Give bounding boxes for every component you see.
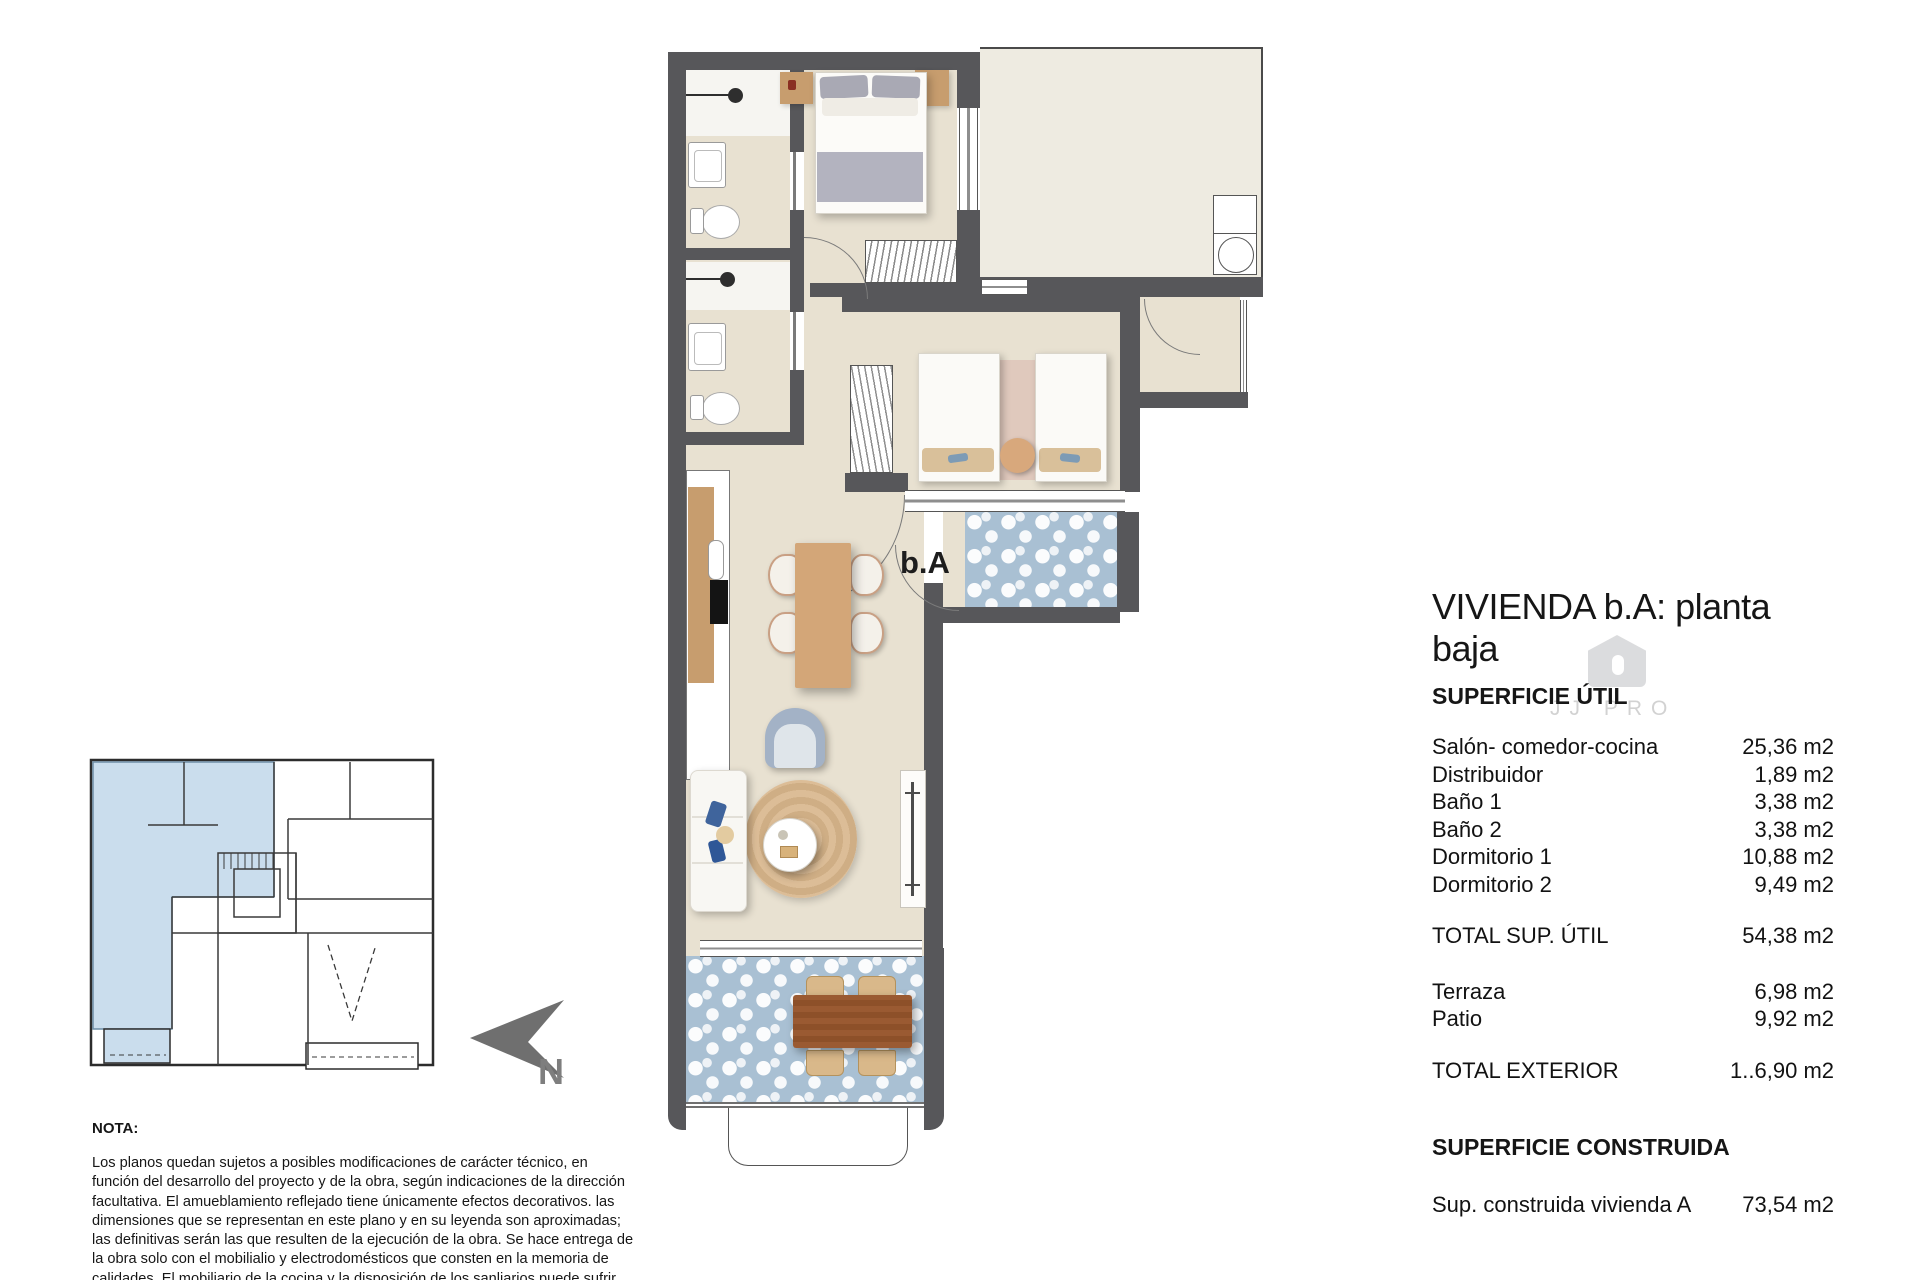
- row-value: 3,38 m2: [1755, 816, 1835, 844]
- corridor-window: [1240, 300, 1247, 392]
- tv-tick: [905, 884, 920, 886]
- row-label: Dormitorio 2: [1432, 871, 1552, 899]
- tv-line: [911, 782, 914, 896]
- nightstand-decor: [788, 80, 796, 90]
- area-row: Terraza6,98 m2: [1432, 978, 1834, 1006]
- bed2-wardrobe: [850, 365, 893, 473]
- row-value: 9,92 m2: [1755, 1005, 1835, 1033]
- nota-body: Los planos quedan sujetos a posibles mod…: [92, 1154, 637, 1280]
- wall-bed1-right-bottom: [957, 210, 980, 297]
- bath2-sink-bowl: [694, 332, 722, 365]
- bath1-sink-bowl: [694, 150, 722, 182]
- living-terrace-window: [700, 940, 922, 957]
- bed1-blanket: [817, 152, 923, 202]
- wall-living-right: [924, 583, 943, 955]
- wall-tile-strip-bottom: [943, 607, 1120, 623]
- terrace-chair: [806, 1050, 844, 1076]
- washing-machine-divider: [1213, 233, 1257, 234]
- dining-chair: [850, 554, 884, 596]
- wall-left: [668, 52, 686, 1130]
- wall-bed1-right-top: [957, 70, 980, 108]
- dining-chair: [850, 612, 884, 654]
- armchair-seat: [774, 724, 816, 768]
- bath1-pocket-door: [793, 152, 796, 210]
- terrace-chair: [858, 1050, 896, 1076]
- bed1-wardrobe: [865, 240, 957, 283]
- sofa-cushion-line: [692, 862, 743, 864]
- row-label: Sup. construida vivienda A: [1432, 1191, 1691, 1219]
- terrace-table: [793, 995, 912, 1048]
- wall-bath-separator: [668, 248, 804, 260]
- bath1-shower: [686, 70, 790, 136]
- north-arrow: N: [468, 998, 578, 1088]
- dorm2-side-table: [1000, 438, 1035, 473]
- section-superficie-util: SUPERFICIE ÚTIL: [1432, 683, 1834, 710]
- bedroom1-window: [959, 108, 978, 210]
- wall-dorm2-top: [842, 297, 1120, 312]
- bath2-toilet: [702, 392, 740, 425]
- patio-tiled-strip: [965, 512, 1117, 609]
- row-value: 1..6,90 m2: [1730, 1057, 1834, 1085]
- bath2-shower-arm: [686, 278, 726, 280]
- nota-block: NOTA: Los planos quedan sujetos a posibl…: [92, 1120, 637, 1280]
- keyplan-stoop-right: [306, 1043, 418, 1069]
- unit-label: b.A: [900, 545, 950, 581]
- washing-machine-drum: [1218, 237, 1254, 273]
- row-label: Baño 1: [1432, 788, 1502, 816]
- area-row: Distribuidor1,89 m2: [1432, 761, 1834, 789]
- area-row: Dormitorio 29,49 m2: [1432, 871, 1834, 899]
- white-mask: [944, 623, 1270, 1123]
- nota-heading: NOTA:: [92, 1120, 637, 1137]
- panel-title: VIVIENDA b.A: planta baja: [1432, 586, 1834, 670]
- wall-bath1-right-b: [790, 210, 804, 248]
- row-value: 10,88 m2: [1742, 843, 1834, 871]
- wall-bath2-bottom: [668, 432, 804, 445]
- area-row: Baño 23,38 m2: [1432, 816, 1834, 844]
- bath1-shower-arm: [686, 94, 732, 96]
- floor-plan: JJ PRO b.A: [660, 40, 1272, 1190]
- area-row: Salón- comedor-cocina25,36 m2: [1432, 733, 1834, 761]
- bath1-toilet-tank: [690, 208, 704, 234]
- row-label: Salón- comedor-cocina: [1432, 733, 1658, 761]
- bath1-toilet: [702, 205, 740, 239]
- coffee-table: [763, 818, 817, 872]
- row-label: Terraza: [1432, 978, 1505, 1006]
- bed1-nightstand-left: [780, 72, 813, 104]
- bath2-shower: [686, 262, 790, 310]
- bed1-pillow2: [822, 98, 918, 116]
- dorm2-window: [905, 490, 1125, 512]
- row-value: 3,38 m2: [1755, 788, 1835, 816]
- row-label: Distribuidor: [1432, 761, 1543, 789]
- north-letter: N: [538, 1051, 564, 1088]
- area-row: Patio9,92 m2: [1432, 1005, 1834, 1033]
- row-value: 73,54 m2: [1742, 1191, 1834, 1219]
- bed1-pillow-left: [819, 75, 868, 99]
- row-label: Baño 2: [1432, 816, 1502, 844]
- row-value: 54,38 m2: [1742, 922, 1834, 950]
- kitchen-cooktop: [710, 580, 728, 624]
- summary-panel: VIVIENDA b.A: planta baja SUPERFICIE ÚTI…: [1432, 586, 1834, 1219]
- row-value: 1,89 m2: [1755, 761, 1835, 789]
- section-superficie-construida: SUPERFICIE CONSTRUIDA: [1432, 1134, 1834, 1161]
- wall-top: [668, 52, 980, 70]
- row-value: 25,36 m2: [1742, 733, 1834, 761]
- area-row: Dormitorio 110,88 m2: [1432, 843, 1834, 871]
- row-label: Dormitorio 1: [1432, 843, 1552, 871]
- keyplan-stoop-left: [104, 1029, 170, 1063]
- row-value: 6,98 m2: [1755, 978, 1835, 1006]
- dining-table: [795, 543, 851, 688]
- tv-tick: [905, 792, 920, 794]
- area-rows: Salón- comedor-cocina25,36 m2 Distribuid…: [1432, 733, 1834, 898]
- wall-corridor-bottom: [1140, 392, 1248, 408]
- wall-bath2-right-b: [790, 370, 804, 432]
- row-value: 9,49 m2: [1755, 871, 1835, 899]
- wall-dorm2-bottom: [845, 473, 908, 492]
- bed1-pillow-right: [872, 75, 921, 99]
- area-row: Baño 13,38 m2: [1432, 788, 1834, 816]
- row-label: Patio: [1432, 1005, 1482, 1033]
- wall-tile-strip-right: [1117, 512, 1139, 612]
- bath2-pocket-door: [793, 312, 796, 370]
- constructed-row: Sup. construida vivienda A73,54 m2: [1432, 1191, 1834, 1219]
- total-util-row: TOTAL SUP. ÚTIL54,38 m2: [1432, 922, 1834, 950]
- wall-bath2-right-a: [790, 260, 804, 312]
- coffee-table-book: [780, 846, 798, 858]
- wall-dorm2-right: [1120, 297, 1140, 492]
- bath2-toilet-tank: [690, 395, 704, 420]
- row-label: TOTAL EXTERIOR: [1432, 1057, 1619, 1085]
- wall-terrace-right: [924, 948, 944, 1130]
- total-exterior-row: TOTAL EXTERIOR1..6,90 m2: [1432, 1057, 1834, 1085]
- sofa-pillow-tan: [716, 826, 734, 844]
- page: JJ PRO b.A: [0, 0, 1920, 1280]
- terrace-step: [728, 1108, 908, 1166]
- patio-window: [982, 279, 1027, 295]
- kitchen-handle: [708, 540, 724, 580]
- row-label: TOTAL SUP. ÚTIL: [1432, 922, 1608, 950]
- key-plan: [88, 755, 450, 1090]
- coffee-table-decor: [778, 830, 788, 840]
